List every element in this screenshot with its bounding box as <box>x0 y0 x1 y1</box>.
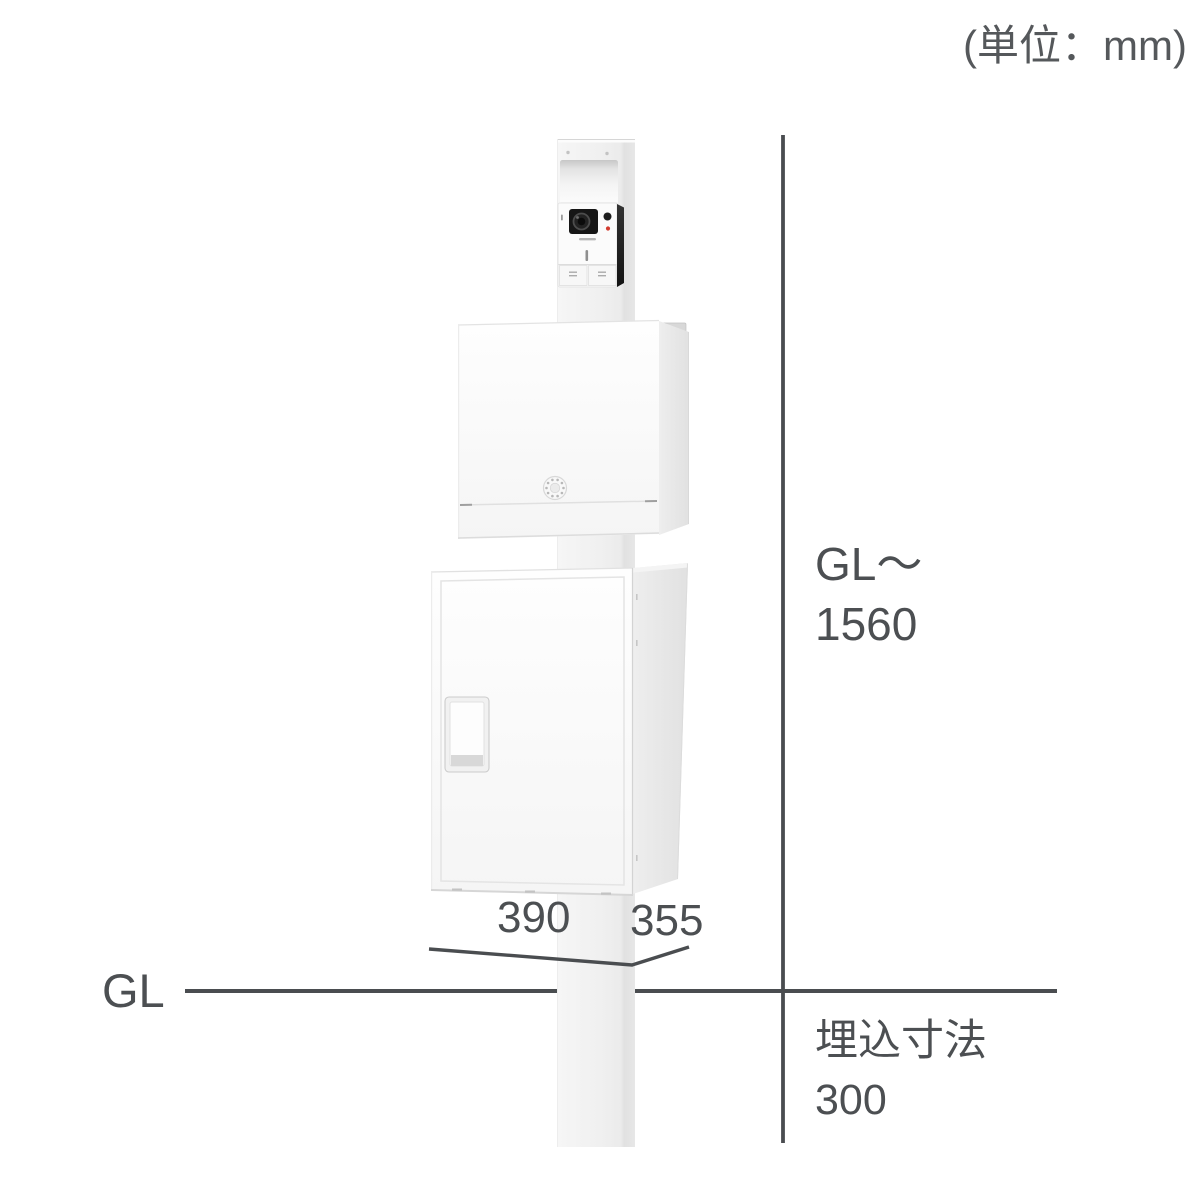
screw-icon <box>605 152 608 155</box>
embed-label-title: 埋込寸法 <box>815 1012 987 1071</box>
hinge-mark <box>636 640 638 646</box>
dimension-diagram: (単位：mm) GL〜 1560 390 355 GL 埋込寸法 300 <box>0 0 1200 1200</box>
mailbox-front-face <box>458 320 659 539</box>
call-button-icon <box>604 213 612 221</box>
sensor-slit <box>561 215 563 221</box>
mailbox-side-panel <box>659 321 689 535</box>
hinge-mark <box>452 889 462 891</box>
depth-dimension-label: 355 <box>630 896 703 946</box>
mail-post-box <box>458 320 689 539</box>
width-dimension-label: 390 <box>497 893 570 943</box>
height-dimension-label: GL〜 1560 <box>815 534 922 654</box>
embed-dimension-label: 埋込寸法 300 <box>815 1012 987 1130</box>
unit-note: (単位：mm) <box>963 12 1187 73</box>
door-handle <box>445 697 489 772</box>
button-glyph <box>569 272 577 273</box>
height-label-prefix: GL〜 <box>815 534 922 594</box>
intercom-side-edge <box>617 204 624 287</box>
dial-lock-icon <box>544 477 567 500</box>
hinge-mark <box>636 855 638 861</box>
button-glyph <box>598 275 606 276</box>
button-glyph <box>569 275 577 276</box>
deliverybox-side-panel <box>633 563 688 894</box>
ground-level-label: GL <box>102 963 165 1018</box>
hinge-mark <box>601 893 611 895</box>
brand-mark <box>579 238 596 240</box>
screw-icon <box>566 151 569 154</box>
intercom-unit <box>558 203 624 287</box>
hood-recess <box>560 160 618 204</box>
button-glyph <box>598 272 606 273</box>
lens-highlight <box>576 216 579 219</box>
hinge-mark <box>636 594 638 600</box>
delivery-box <box>431 563 688 895</box>
camera-lens-center <box>578 218 586 226</box>
mic-slit-icon <box>586 250 589 261</box>
height-label-value: 1560 <box>815 594 922 654</box>
product-illustration <box>0 0 1200 1200</box>
led-indicator-icon <box>606 226 610 230</box>
embed-label-value: 300 <box>815 1071 987 1130</box>
